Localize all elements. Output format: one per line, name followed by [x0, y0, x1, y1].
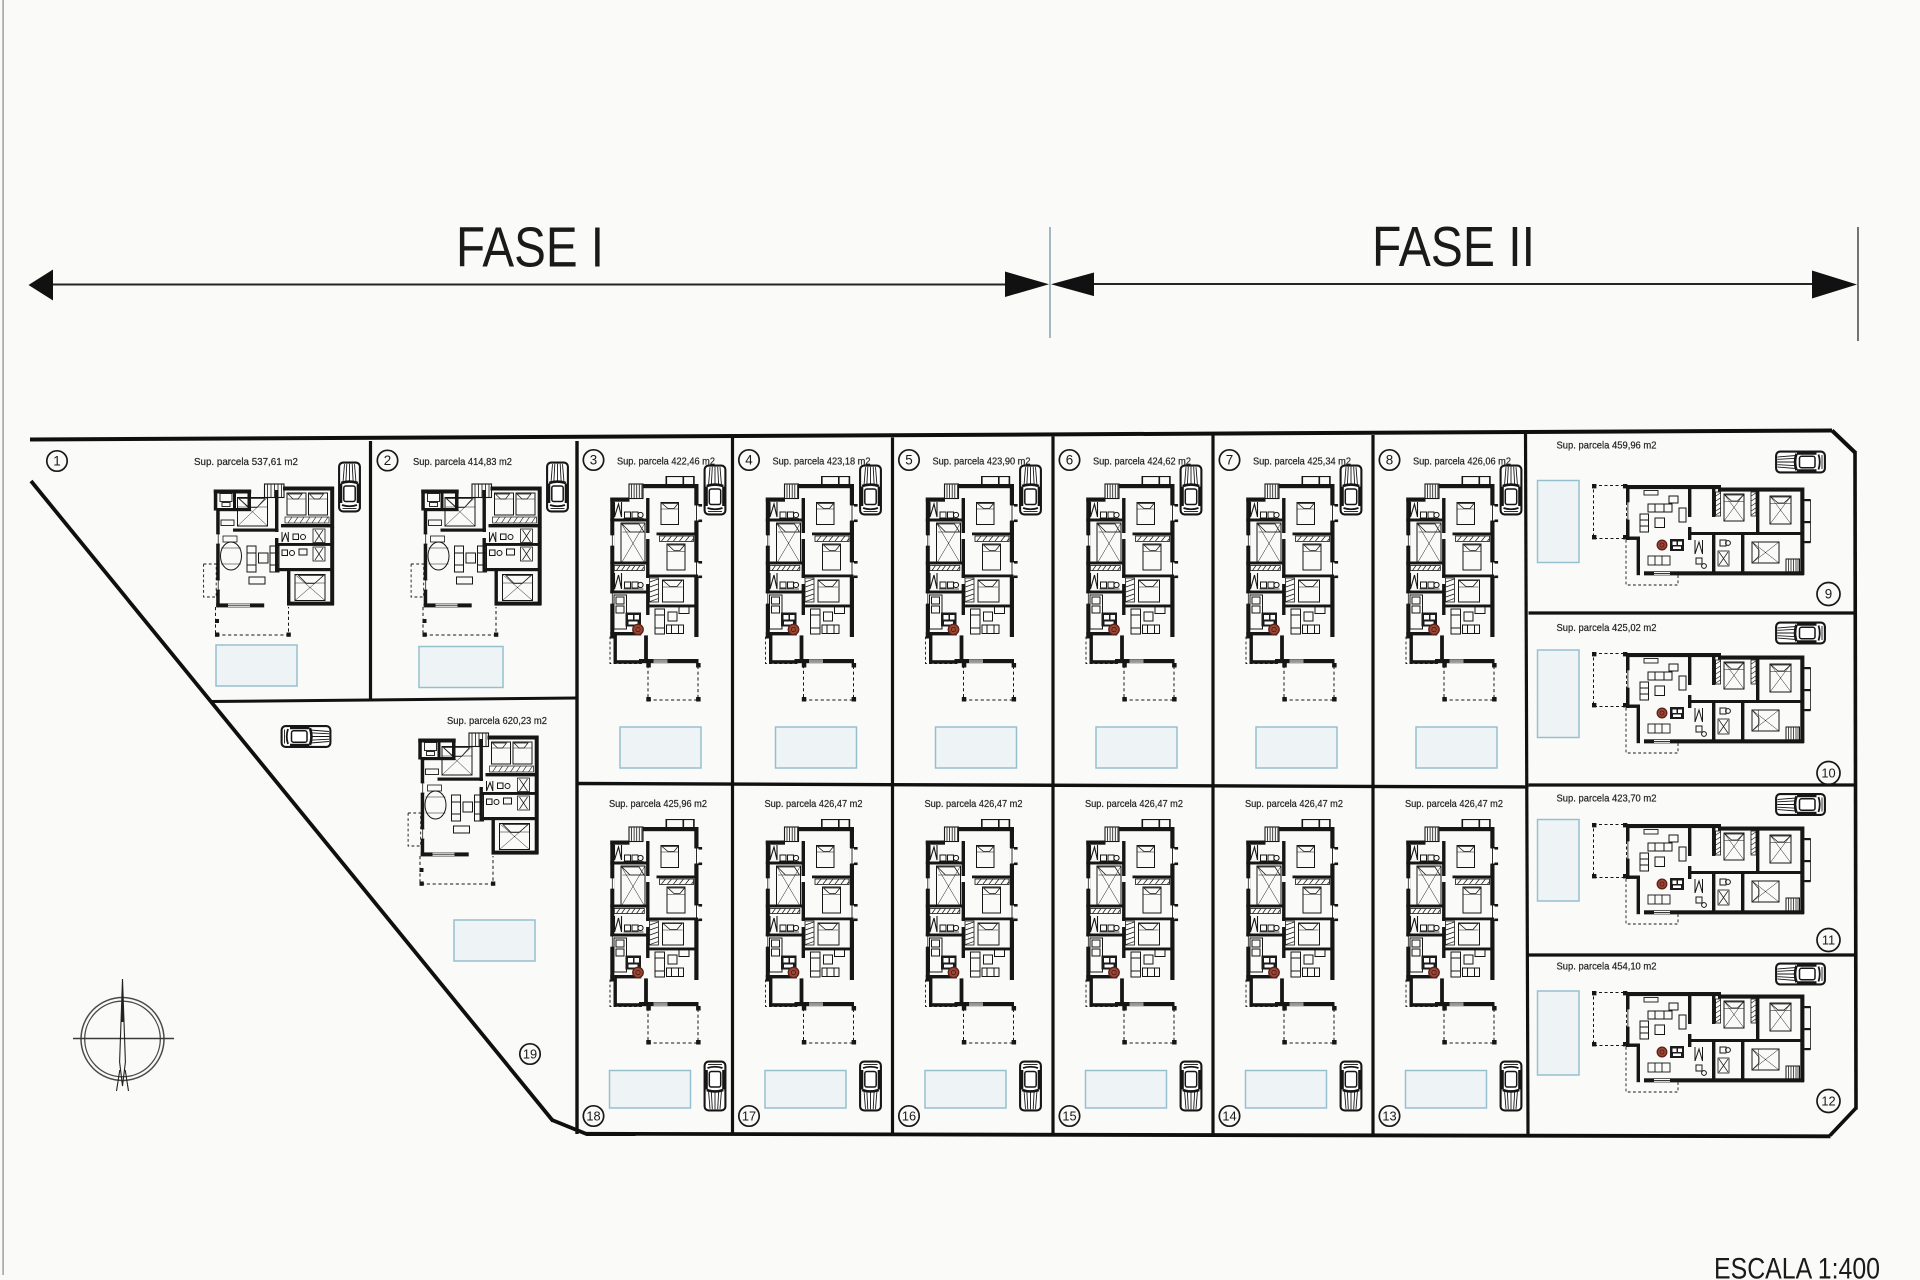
svg-text:Sup. parcela 426,47 m2: Sup. parcela 426,47 m2: [765, 799, 863, 810]
svg-text:Sup. parcela 423,90 m2: Sup. parcela 423,90 m2: [933, 457, 1031, 468]
svg-text:16: 16: [902, 1109, 916, 1124]
svg-text:FASE I: FASE I: [456, 216, 604, 280]
svg-text:2: 2: [384, 453, 391, 468]
svg-text:Sup. parcela 423,18 m2: Sup. parcela 423,18 m2: [773, 457, 871, 468]
svg-text:Sup. parcela 414,83 m2: Sup. parcela 414,83 m2: [413, 457, 512, 468]
svg-text:Sup. parcela 424,62 m2: Sup. parcela 424,62 m2: [1093, 457, 1191, 468]
svg-text:Sup. parcela 423,70 m2: Sup. parcela 423,70 m2: [1557, 794, 1657, 805]
svg-text:Sup. parcela 425,02 m2: Sup. parcela 425,02 m2: [1557, 623, 1657, 634]
svg-text:3: 3: [590, 453, 597, 468]
svg-text:Sup. parcela 426,47 m2: Sup. parcela 426,47 m2: [1405, 799, 1503, 810]
svg-text:Sup. parcela 422,46 m2: Sup. parcela 422,46 m2: [617, 457, 715, 468]
svg-text:Sup. parcela 454,10 m2: Sup. parcela 454,10 m2: [1557, 962, 1657, 973]
svg-text:Sup. parcela 426,47 m2: Sup. parcela 426,47 m2: [1245, 799, 1343, 810]
svg-text:8: 8: [1386, 453, 1393, 468]
svg-text:Sup. parcela 425,96 m2: Sup. parcela 425,96 m2: [609, 799, 707, 810]
svg-text:Sup. parcela 426,47 m2: Sup. parcela 426,47 m2: [1085, 799, 1183, 810]
svg-text:9: 9: [1825, 587, 1832, 602]
svg-text:18: 18: [586, 1109, 600, 1124]
svg-text:Sup. parcela 426,06 m2: Sup. parcela 426,06 m2: [1413, 457, 1511, 468]
svg-text:Sup. parcela 537,61 m2: Sup. parcela 537,61 m2: [194, 457, 298, 468]
svg-text:5: 5: [905, 453, 912, 468]
svg-text:FASE II: FASE II: [1372, 215, 1535, 279]
svg-text:7: 7: [1226, 453, 1233, 468]
svg-text:Sup. parcela 459,96 m2: Sup. parcela 459,96 m2: [1557, 441, 1657, 452]
svg-text:12: 12: [1821, 1094, 1835, 1109]
svg-text:13: 13: [1382, 1109, 1396, 1124]
svg-text:1: 1: [53, 454, 60, 469]
svg-text:Sup. parcela 425,34 m2: Sup. parcela 425,34 m2: [1253, 457, 1351, 468]
svg-text:17: 17: [742, 1109, 756, 1124]
svg-text:15: 15: [1062, 1109, 1076, 1124]
svg-text:Sup. parcela 426,47 m2: Sup. parcela 426,47 m2: [925, 799, 1023, 810]
svg-text:10: 10: [1821, 766, 1835, 781]
svg-text:6: 6: [1066, 453, 1073, 468]
svg-text:11: 11: [1822, 933, 1835, 948]
svg-text:19: 19: [523, 1047, 537, 1062]
svg-text:4: 4: [745, 453, 753, 468]
svg-text:Sup. parcela 620,23 m2: Sup. parcela 620,23 m2: [447, 716, 547, 727]
svg-text:ESCALA 1:400: ESCALA 1:400: [1714, 1253, 1880, 1280]
svg-text:14: 14: [1222, 1109, 1236, 1124]
